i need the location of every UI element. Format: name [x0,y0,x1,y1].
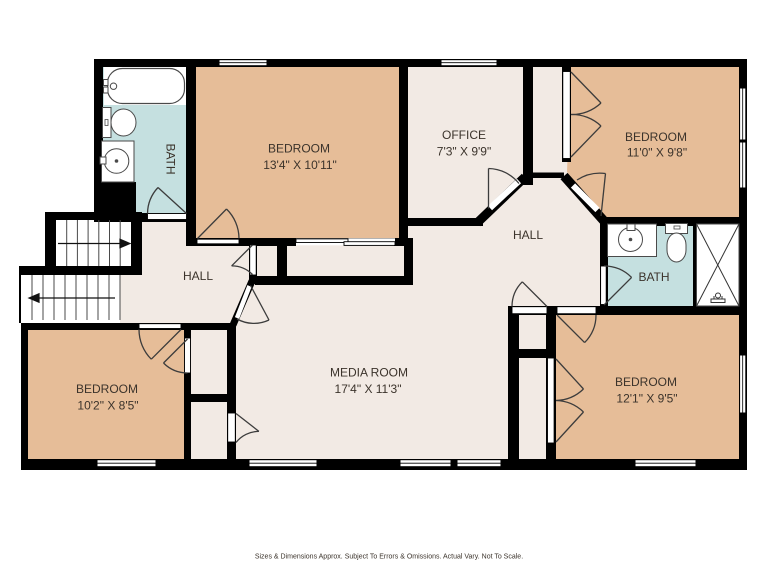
svg-text:HALL: HALL [513,228,543,242]
svg-text:BEDROOM: BEDROOM [76,382,138,396]
svg-text:BATH: BATH [164,143,178,174]
svg-text:OFFICE: OFFICE [442,128,486,142]
svg-text:BATH: BATH [638,270,669,284]
svg-text:13'4" X 10'11": 13'4" X 10'11" [263,158,337,172]
svg-text:10'2" X 8'5": 10'2" X 8'5" [77,398,138,412]
svg-text:7'3" X 9'9": 7'3" X 9'9" [437,144,491,158]
svg-text:11'0" X 9'8": 11'0" X 9'8" [627,146,687,160]
svg-text:BEDROOM: BEDROOM [268,142,330,156]
svg-text:BEDROOM: BEDROOM [615,375,677,389]
svg-text:BEDROOM: BEDROOM [625,130,687,144]
svg-text:MEDIA ROOM: MEDIA ROOM [330,366,408,380]
svg-text:12'1" X 9'5": 12'1" X 9'5" [616,391,677,405]
svg-text:Sizes & Dimensions Approx. Sub: Sizes & Dimensions Approx. Subject To Er… [255,554,523,561]
svg-text:17'4" X 11'3": 17'4" X 11'3" [335,382,402,396]
svg-text:HALL: HALL [183,269,213,283]
